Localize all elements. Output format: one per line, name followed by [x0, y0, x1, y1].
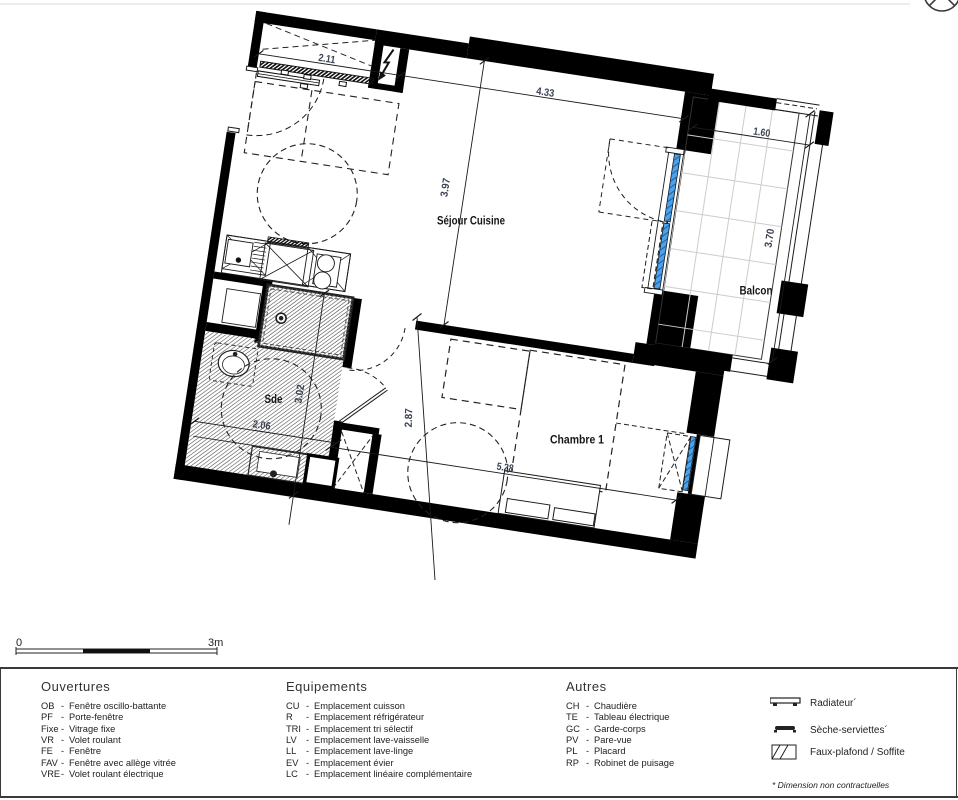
svg-text:3m: 3m [208, 637, 223, 649]
svg-text:Sde: Sde [265, 394, 283, 406]
svg-text:Faux-plafond / Soffite: Faux-plafond / Soffite [810, 747, 905, 758]
svg-text:Chambre 1: Chambre 1 [550, 433, 604, 447]
svg-text:3.97: 3.97 [438, 177, 453, 198]
svg-text:Radiateur´: Radiateur´ [810, 697, 857, 709]
svg-text:Séjour Cuisine: Séjour Cuisine [437, 214, 505, 228]
svg-text:4.33: 4.33 [535, 85, 555, 100]
svg-text:3.70: 3.70 [762, 228, 777, 249]
svg-text:2.87: 2.87 [403, 408, 416, 428]
svg-text:1.60: 1.60 [752, 126, 771, 140]
svg-text:Sèche-serviettes´: Sèche-serviettes´ [810, 724, 888, 736]
svg-text:Balcon: Balcon [740, 286, 773, 298]
svg-text:5.28: 5.28 [496, 461, 515, 475]
svg-text:0: 0 [16, 637, 22, 649]
svg-text:2.11: 2.11 [318, 52, 337, 66]
svg-text:* Dimension non contractuelles: * Dimension non contractuelles [772, 780, 890, 790]
